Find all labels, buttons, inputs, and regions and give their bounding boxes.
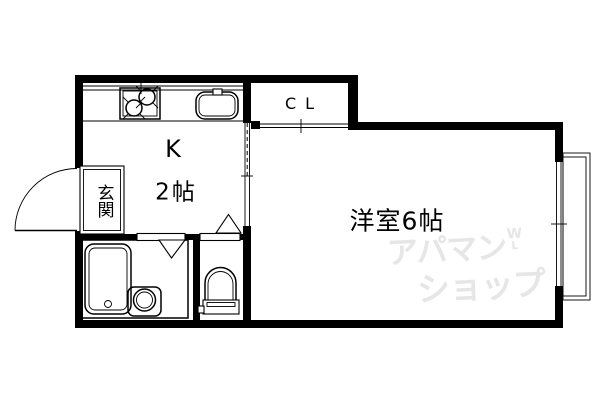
bathtub-icon: [85, 244, 131, 314]
entrance-label: 玄関: [95, 184, 112, 218]
sink-icon: [196, 89, 238, 119]
bathroom-door-icon: [137, 234, 185, 259]
toilet-door-icon: [200, 215, 241, 241]
kitchen-label: K: [165, 137, 181, 161]
stove-icon: [120, 86, 160, 119]
closet-sliding-door-icon: [251, 119, 348, 133]
kitchen-size-label: 2帖: [155, 182, 197, 205]
entrance-door-icon: [15, 169, 77, 231]
floorplan-canvas: アパマン W L ショップ: [0, 0, 600, 400]
toilet-icon: [198, 268, 239, 315]
closet-label: CL: [285, 96, 323, 112]
partition-door-icon: [241, 123, 253, 228]
room-window-icon: [551, 153, 590, 300]
washbasin-icon: [128, 287, 161, 316]
floorplan-drawing: [0, 0, 600, 400]
western-room-label: 洋室6帖: [350, 209, 445, 234]
